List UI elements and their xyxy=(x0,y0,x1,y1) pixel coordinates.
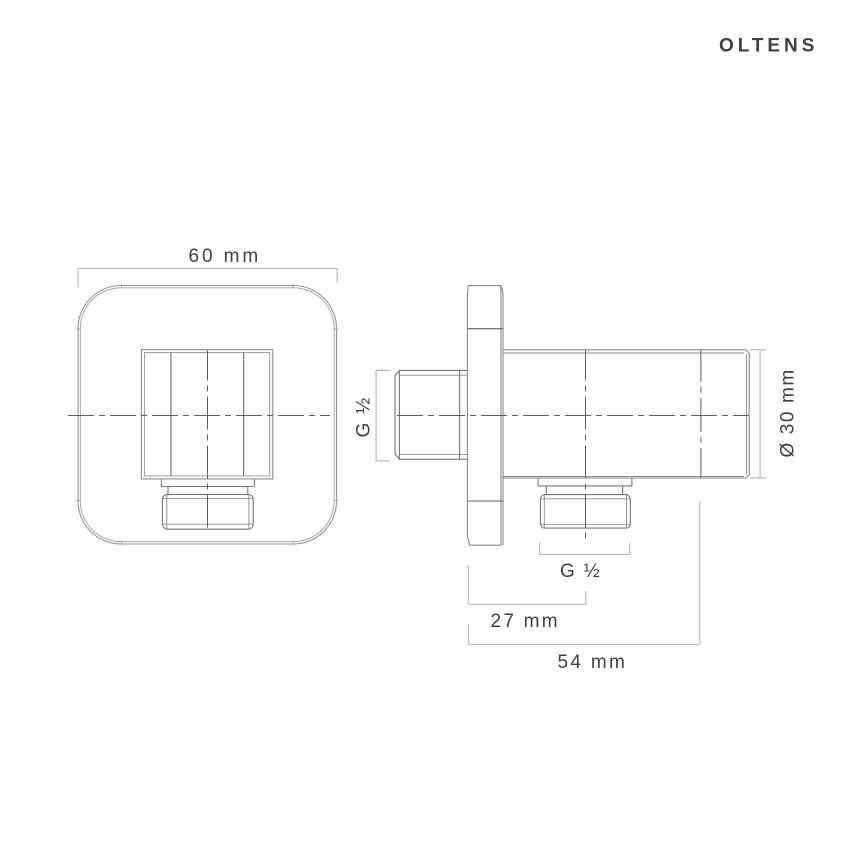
svg-text:OLTENS: OLTENS xyxy=(719,36,818,57)
svg-text:54 mm: 54 mm xyxy=(558,652,628,673)
svg-text:G ½: G ½ xyxy=(560,561,601,582)
svg-text:27 mm: 27 mm xyxy=(491,611,560,632)
svg-text:G ½: G ½ xyxy=(353,396,374,437)
svg-text:Ø 30 mm: Ø 30 mm xyxy=(778,368,799,457)
svg-text:60 mm: 60 mm xyxy=(189,246,262,267)
